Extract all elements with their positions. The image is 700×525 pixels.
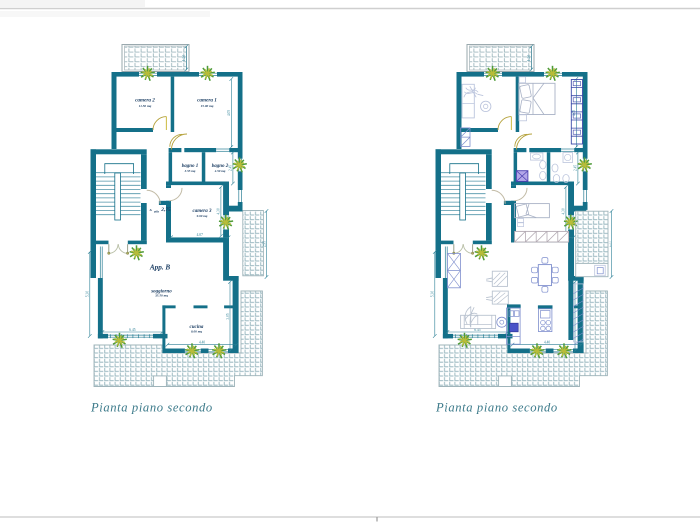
svg-text:3.05: 3.05 [226,313,230,319]
svg-text:h.: h. [150,208,153,212]
svg-text:4.40: 4.40 [199,340,205,344]
svg-text:5.30: 5.30 [86,291,90,297]
svg-text:3.55 mq: 3.55 mq [184,169,196,173]
svg-text:4.05: 4.05 [227,110,231,116]
svg-text:camera 2: camera 2 [135,98,155,104]
svg-text:2.95: 2.95 [262,241,266,247]
svg-text:4.07: 4.07 [197,233,203,237]
svg-text:8.00 mq: 8.00 mq [191,329,202,333]
svg-text:35.50 mq: 35.50 mq [154,294,168,298]
svg-text:11.50 mq: 11.50 mq [139,104,152,108]
svg-text:utile: utile [154,211,160,214]
svg-text:4.30: 4.30 [217,208,221,214]
svg-text:Pianta piano secondo: Pianta piano secondo [435,401,558,415]
svg-text:2.45: 2.45 [229,165,233,171]
svg-text:4.50 mq: 4.50 mq [214,169,226,173]
svg-text:15.00 mq: 15.00 mq [201,104,214,108]
svg-text:9.00 mq: 9.00 mq [197,214,208,218]
svg-text:Pianta piano secondo: Pianta piano secondo [90,401,213,415]
svg-text:1.20: 1.20 [182,55,186,61]
svg-text:App. B: App. B [149,263,171,271]
svg-text:2,75: 2,75 [160,207,171,213]
svg-text:6.45: 6.45 [129,328,135,332]
svg-text:camera 1: camera 1 [197,98,217,104]
